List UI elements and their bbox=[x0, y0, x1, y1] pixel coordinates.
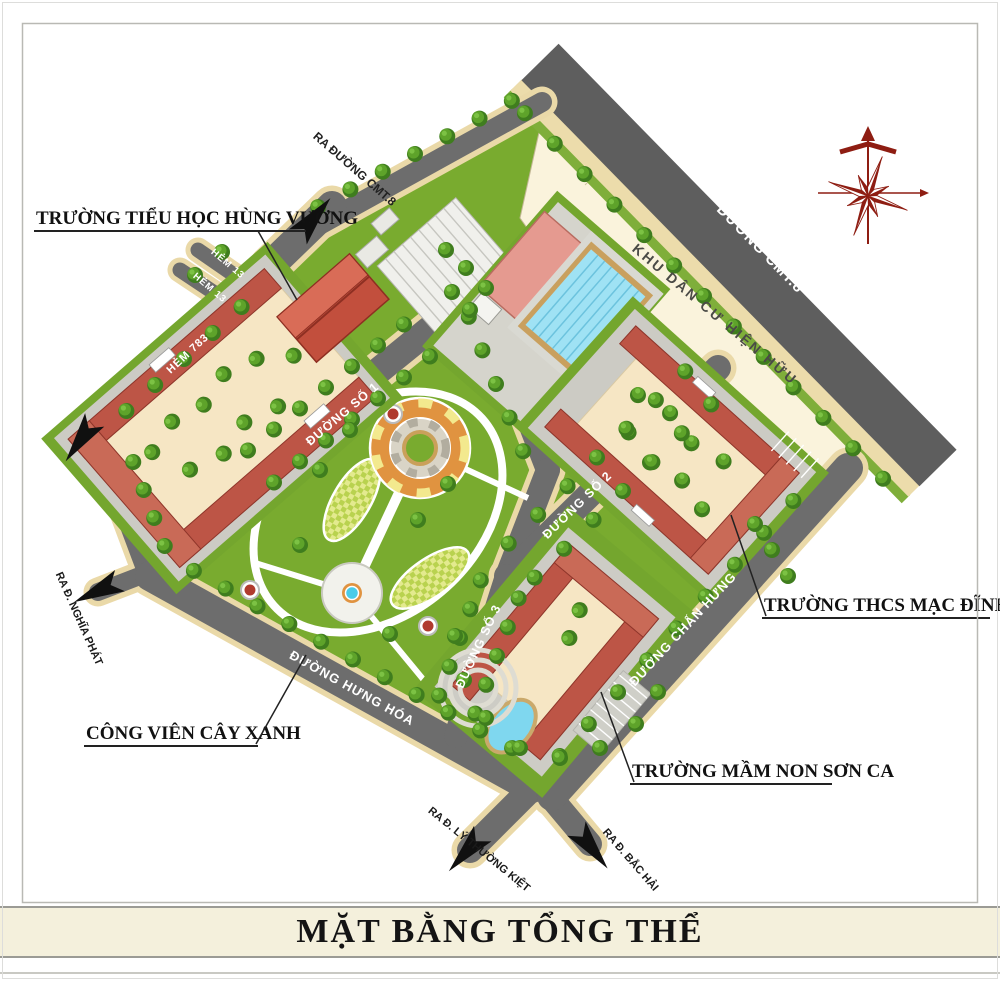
north-arrow bbox=[861, 126, 875, 141]
tree-icon bbox=[342, 422, 358, 438]
tree-icon bbox=[674, 425, 690, 441]
callout-cong-vien: CÔNG VIÊN CÂY XANH bbox=[86, 722, 301, 744]
tree-icon bbox=[547, 136, 563, 152]
page-bottom-rule bbox=[0, 972, 1000, 974]
page-title: MẶT BẰNG TỔNG THỂ bbox=[296, 913, 703, 951]
tree-icon bbox=[610, 684, 626, 700]
tree-icon bbox=[703, 396, 719, 412]
tree-icon bbox=[292, 401, 308, 417]
tree-icon bbox=[489, 648, 505, 664]
tree-icon bbox=[511, 590, 527, 606]
tree-icon bbox=[147, 377, 163, 393]
tree-icon bbox=[431, 688, 447, 704]
tree-icon bbox=[618, 421, 634, 437]
tree-icon bbox=[650, 684, 666, 700]
tree-icon bbox=[447, 628, 463, 644]
tree-icon bbox=[396, 370, 412, 386]
tree-icon bbox=[318, 380, 334, 396]
tree-icon bbox=[527, 570, 543, 586]
tree-icon bbox=[409, 687, 425, 703]
site-plan-page: ĐƯỜNG CMT.8 RA ĐƯỜNG CMT.8 HẺM 13 HẺM 13… bbox=[0, 0, 1000, 981]
tree-icon bbox=[764, 542, 780, 558]
tree-icon bbox=[186, 563, 202, 579]
tree-icon bbox=[344, 359, 360, 375]
tree-icon bbox=[512, 740, 528, 756]
tree-icon bbox=[474, 342, 490, 358]
tree-icon bbox=[589, 450, 605, 466]
tree-icon bbox=[628, 716, 644, 732]
tree-icon bbox=[478, 710, 494, 726]
fountain-plaza bbox=[322, 563, 382, 623]
tree-icon bbox=[560, 478, 576, 494]
tree-icon bbox=[552, 750, 568, 766]
road-label-bac-hai: RA Đ. BẮC HẢI bbox=[600, 826, 661, 894]
tree-icon bbox=[266, 475, 282, 491]
tree-icon bbox=[281, 616, 297, 632]
tree-icon bbox=[875, 471, 891, 487]
tree-icon bbox=[438, 242, 454, 258]
tree-icon bbox=[592, 740, 608, 756]
tree-icon bbox=[501, 536, 517, 552]
tree-icon bbox=[234, 299, 250, 315]
tree-icon bbox=[313, 634, 329, 650]
tree-icon bbox=[488, 376, 504, 392]
tree-icon bbox=[677, 363, 693, 379]
tree-icon bbox=[747, 516, 763, 532]
tree-icon bbox=[502, 410, 518, 426]
tree-icon bbox=[312, 462, 328, 478]
tree-icon bbox=[410, 512, 426, 528]
tree-icon bbox=[442, 659, 458, 675]
tree-icon bbox=[396, 317, 412, 333]
tree-icon bbox=[440, 476, 456, 492]
tree-icon bbox=[382, 626, 398, 642]
tree-icon bbox=[517, 105, 533, 121]
tree-icon bbox=[845, 440, 861, 456]
tree-icon bbox=[118, 403, 134, 419]
tree-icon bbox=[370, 338, 386, 354]
tree-icon bbox=[515, 443, 531, 459]
tree-icon bbox=[136, 482, 152, 498]
tree-icon bbox=[473, 572, 489, 588]
tree-icon bbox=[375, 164, 391, 180]
callout-thcs: TRƯỜNG THCS MẠC ĐĨNH CHI bbox=[764, 594, 1000, 616]
tree-icon bbox=[780, 568, 796, 584]
tree-icon bbox=[530, 507, 546, 523]
title-bar: MẶT BẰNG TỔNG THỂ bbox=[0, 906, 1000, 958]
tree-icon bbox=[292, 537, 308, 553]
tree-icon bbox=[342, 181, 358, 197]
tree-icon bbox=[444, 284, 460, 300]
tree-icon bbox=[504, 93, 520, 109]
tree-icon bbox=[606, 197, 622, 213]
tree-icon bbox=[556, 541, 572, 557]
tree-icon bbox=[240, 443, 256, 459]
callout-mam-non: TRƯỜNG MẦM NON SƠN CA bbox=[632, 760, 894, 782]
tree-icon bbox=[500, 619, 516, 635]
tree-icon bbox=[157, 538, 173, 554]
tree-icon bbox=[125, 454, 141, 470]
tree-icon bbox=[218, 581, 234, 597]
site-plan-map: ĐƯỜNG CMT.8 RA ĐƯỜNG CMT.8 HẺM 13 HẺM 13… bbox=[0, 0, 1000, 981]
tree-icon bbox=[345, 652, 361, 668]
tree-icon bbox=[439, 128, 455, 144]
tree-icon bbox=[615, 483, 631, 499]
tree-icon bbox=[648, 392, 664, 408]
tree-icon bbox=[586, 512, 602, 528]
tree-icon bbox=[815, 410, 831, 426]
tree-icon bbox=[146, 510, 162, 526]
tree-icon bbox=[377, 669, 393, 685]
tree-icon bbox=[478, 280, 494, 296]
callout-tieu-hoc: TRƯỜNG TIỂU HỌC HÙNG VƯƠNG bbox=[36, 207, 358, 229]
tree-icon bbox=[472, 111, 488, 127]
tree-icon bbox=[462, 601, 478, 617]
tree-icon bbox=[785, 493, 801, 509]
tree-icon bbox=[644, 454, 660, 470]
tree-icon bbox=[422, 349, 438, 365]
fountain-pool bbox=[346, 587, 359, 600]
tree-icon bbox=[577, 166, 593, 182]
tree-icon bbox=[292, 454, 308, 470]
tree-icon bbox=[266, 422, 282, 438]
tree-icon bbox=[440, 705, 456, 721]
tree-icon bbox=[478, 677, 494, 693]
tree-icon bbox=[581, 716, 597, 732]
tree-icon bbox=[250, 598, 266, 614]
tree-icon bbox=[462, 302, 478, 318]
tree-icon bbox=[407, 146, 423, 162]
compass-rose bbox=[818, 126, 929, 244]
tree-icon bbox=[458, 260, 474, 276]
